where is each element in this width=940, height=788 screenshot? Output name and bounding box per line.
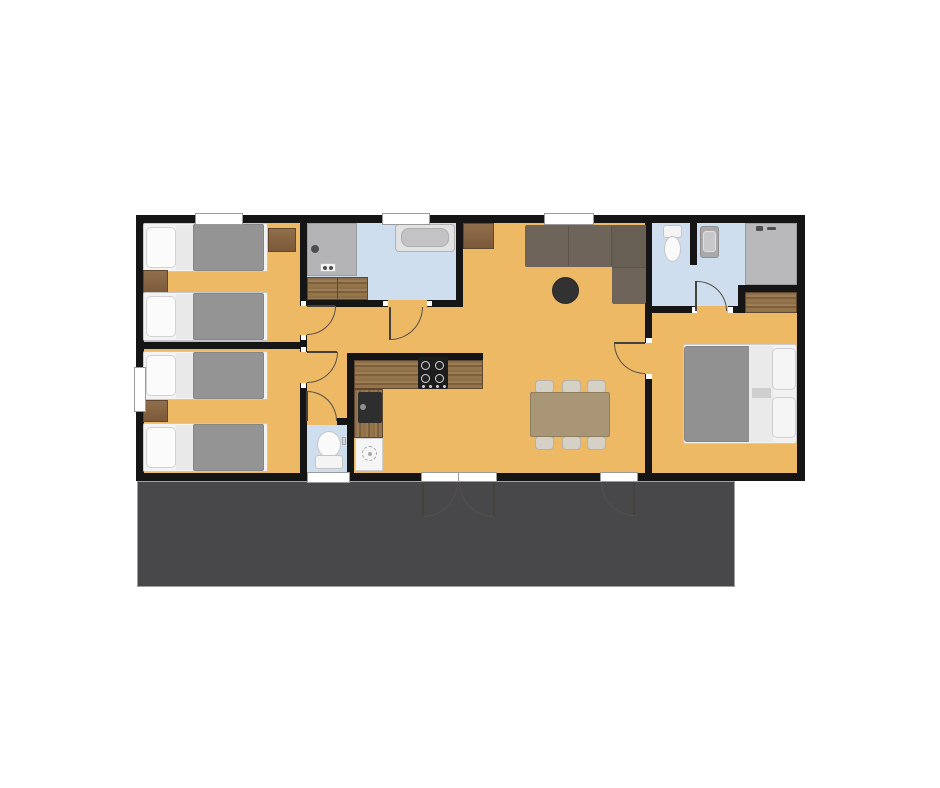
window-wc [307,472,350,483]
master-bed-notch [752,388,771,398]
bed2-duvet [193,293,264,340]
bed2-pillow [146,296,176,337]
dining-chair-bottom-2 [562,436,581,450]
coffee-table [552,277,579,304]
shower2-floor [745,223,797,285]
bed3-duvet [193,352,264,399]
shower2-fixture-2 [767,227,776,230]
dining-chair-bottom-1 [535,436,554,450]
jamb-bathroom1-a [383,301,388,306]
sofa-corner-cushion [612,225,646,267]
master-pillow-2 [772,397,796,438]
single-door-threshold [600,472,638,482]
washing-machine-dot [368,452,372,456]
wall-kitchen-left [347,360,354,473]
master-bed-duvet [684,346,751,442]
cooktop-knob-4 [443,385,446,388]
shower1-tap-2 [329,266,333,270]
jamb-bedroom1-b [301,335,306,340]
jamb-bathroom1-b [427,301,432,306]
wall-toilet2-stub [690,223,697,265]
cooktop-burner-2 [435,361,444,370]
wall-wc-top [337,418,354,425]
nightstand-corner [268,228,296,252]
toilet2-bowl [664,236,681,262]
sofa-seam-1 [568,226,569,266]
sofa-seam-3 [613,267,646,268]
wall-bathroom1-right [456,223,463,300]
wall-bedroom-divider [144,342,307,349]
cooktop-knob-3 [436,385,439,388]
kitchen-faucet [360,404,366,410]
shower2-fixture-1 [756,226,763,231]
nightstand-bedroom2 [143,400,168,422]
bathtub-basin [401,228,449,247]
wall-hall-left-a [300,223,307,306]
window-living [544,213,594,225]
window-bedroom2-side [134,367,146,412]
french-door-mullion [458,473,459,481]
wall-living-master-a [645,223,652,343]
jamb-bathroom2-b [728,307,733,313]
wall-living-master-b [645,374,652,473]
jamb-bedroom2-a [301,347,306,352]
bed3-pillow [146,355,176,396]
jamb-bedroom1-a [301,301,306,306]
bed4-pillow [146,427,176,468]
jamb-master-a [646,338,652,343]
wc-flush-plate [342,437,346,445]
basin2-inner [703,231,716,252]
wall-kitchen-top [347,353,483,360]
cooktop-knob-2 [429,385,432,388]
window-bathroom1 [382,213,430,225]
wall-bathroom2-bottom-a [645,306,697,313]
bed4-duvet [193,424,264,471]
cooktop-knob-1 [422,385,425,388]
window-bedroom1 [195,213,243,225]
bed1-duvet [193,224,264,271]
shower1-tap-1 [323,266,327,270]
jamb-bedroom2-b [301,383,306,388]
wc-toilet-tank [315,455,343,469]
living-cabinet [463,223,494,249]
cooktop-burner-4 [435,374,444,383]
bathroom1-vanity-divider [337,277,338,300]
french-door-threshold [421,472,497,482]
dining-table [530,392,610,437]
bed1-pillow [146,227,176,268]
master-pillow-1 [772,348,796,390]
wall-bathroom1-bottom-b [427,300,463,307]
sofa-seam-2 [611,226,612,266]
master-wardrobe [745,292,797,313]
wall-shower2-bottom [738,285,805,292]
dining-chair-bottom-3 [587,436,606,450]
wc-toilet-bowl [317,431,341,458]
cooktop-burner-1 [421,361,430,370]
jamb-master-b [646,374,652,379]
floor-plan [0,0,940,788]
cooktop-burner-3 [421,374,430,383]
shower1-head [311,245,319,253]
